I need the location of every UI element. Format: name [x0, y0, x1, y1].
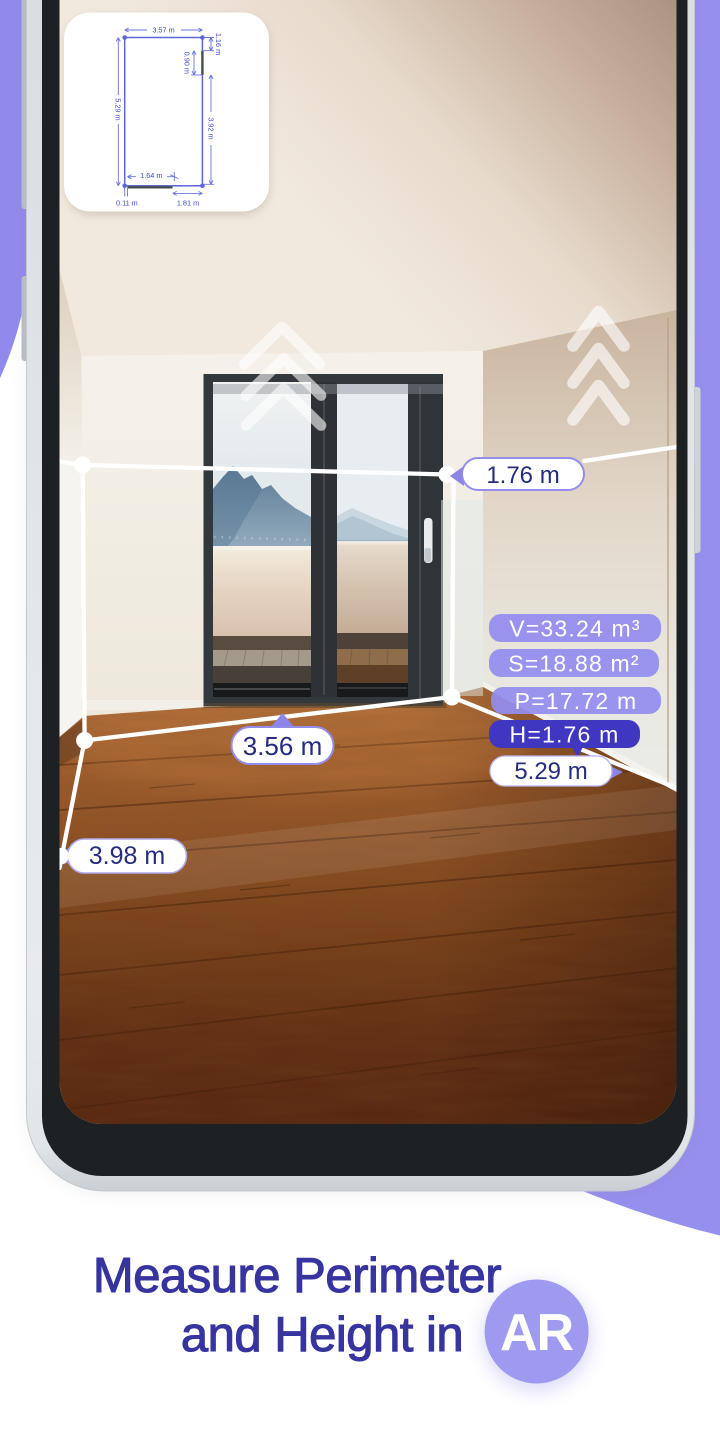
svg-text:S=18.88 m²: S=18.88 m² [508, 651, 640, 677]
svg-text:3.92 m: 3.92 m [207, 117, 216, 139]
svg-text:3.57 m: 3.57 m [152, 26, 174, 35]
svg-text:1.16 m: 1.16 m [214, 33, 223, 55]
svg-text:P=17.72 m: P=17.72 m [515, 688, 638, 714]
svg-text:AR: AR [500, 1304, 574, 1362]
svg-text:and Height in: and Height in [181, 1308, 463, 1362]
svg-text:0.11 m: 0.11 m [116, 198, 138, 207]
svg-text:3.98 m: 3.98 m [89, 842, 165, 870]
svg-text:5.29 m: 5.29 m [514, 758, 587, 785]
svg-text:Measure Perimeter: Measure Perimeter [93, 1249, 501, 1303]
svg-text:1.64 m: 1.64 m [140, 171, 162, 180]
svg-text:0.90 m: 0.90 m [183, 52, 192, 74]
svg-text:1.76 m: 1.76 m [486, 462, 559, 489]
svg-text:1.81 m: 1.81 m [177, 198, 199, 207]
svg-text:H=1.76 m: H=1.76 m [510, 722, 620, 748]
svg-text:5.29 m: 5.29 m [113, 98, 122, 120]
svg-text:V=33.24 m³: V=33.24 m³ [509, 616, 641, 642]
svg-text:3.56 m: 3.56 m [243, 731, 323, 761]
